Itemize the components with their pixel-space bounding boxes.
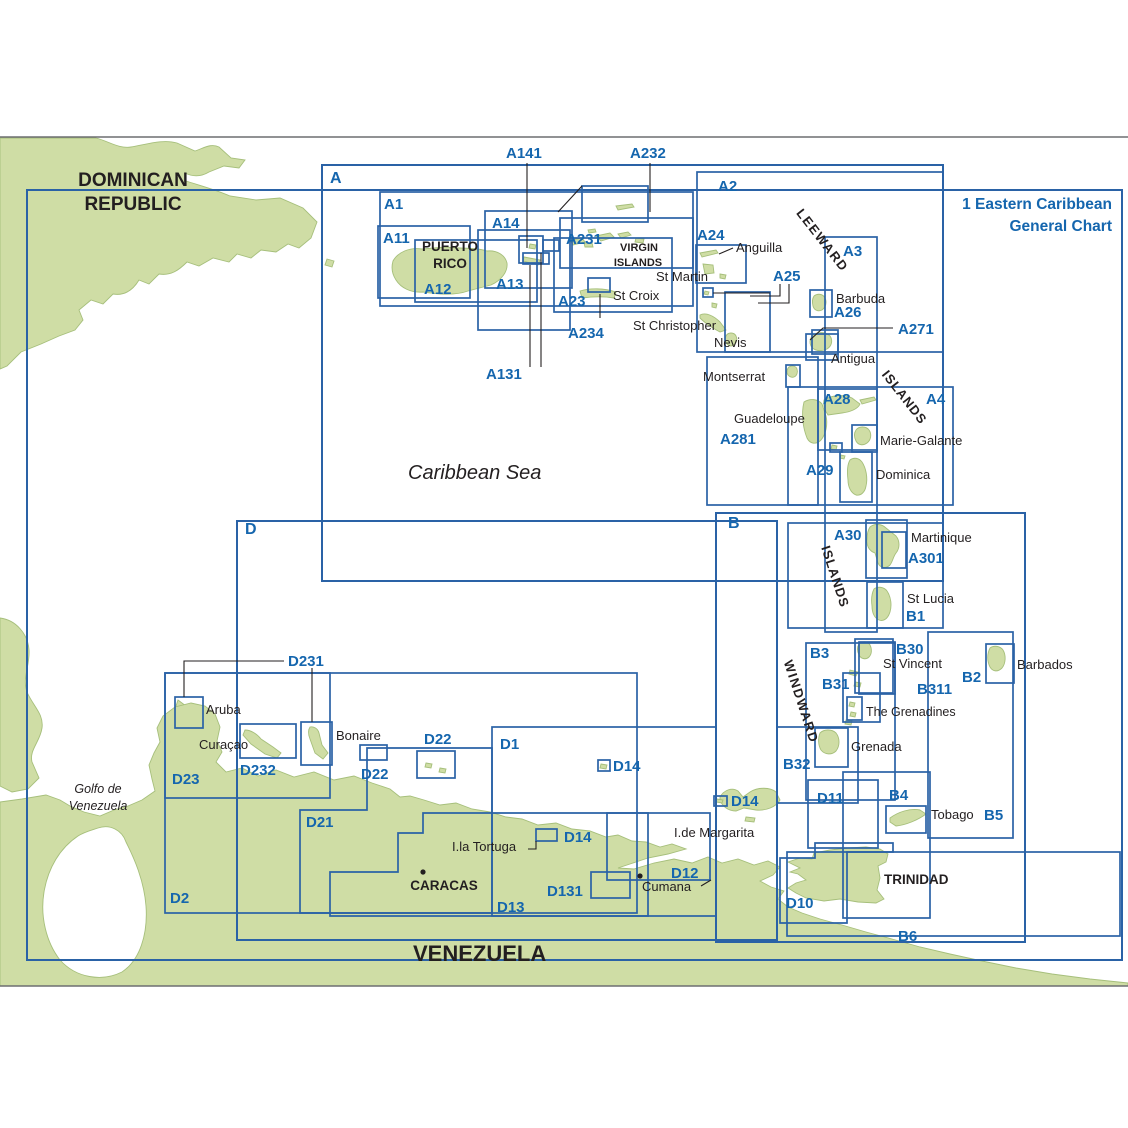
label-a25: A25 [773,268,801,285]
label-martinique: Martinique [911,530,972,545]
box-vieques-1 [543,240,559,251]
grenada-island [819,730,839,754]
montserrat-island [787,366,797,377]
label-grenadines: The Grenadines [866,705,956,719]
label-antigua: Antigua [831,351,876,366]
label-republic: REPUBLIC [84,194,181,215]
label-a30: A30 [834,527,862,544]
label-a29: A29 [806,462,834,479]
box-a [322,165,943,581]
label-a11: A11 [383,230,410,247]
label-windward: WINDWARD [781,658,822,745]
label-d14-b: D14 [613,758,641,775]
label-rico: RICO [433,256,467,271]
conn-a25-1 [750,284,780,296]
label-a301: A301 [908,550,944,567]
label-leeward: LEEWARD [793,206,851,275]
label-curacao: Curaçao [199,737,248,752]
anguilla-island [700,250,718,257]
bonaire-island [309,727,329,759]
coche-islet [745,817,755,822]
label-dominica: Dominica [876,467,931,482]
label-a14: A14 [492,215,520,232]
label-dominican: DOMINICAN [78,170,188,191]
label-d14-c: D14 [731,793,759,810]
label-a12: A12 [424,281,452,298]
tobago-island [890,809,926,826]
mona-island [325,259,334,267]
label-b311: B311 [917,681,952,698]
label-b32: B32 [783,756,811,773]
label-d2: D2 [170,890,189,907]
st-lucia-island [872,587,891,620]
label-puerto: PUERTO [422,239,478,254]
antigua-island [810,333,832,351]
label-venezuela: VENEZUELA [413,941,546,966]
label-nevis: Nevis [714,335,747,350]
barbuda-island [812,294,826,311]
label-a234: A234 [568,325,605,342]
label-barbados: Barbados [1017,657,1073,672]
label-b4: B4 [889,787,909,804]
label-islands-vi: ISLANDS [614,257,662,269]
curacao-island [243,730,281,758]
label-a1: A1 [384,196,403,213]
label-a4: A4 [926,391,946,408]
label-stmartin: St Martin [656,269,708,284]
label-margarita: I.de Margarita [674,825,755,840]
landmasses [0,138,1128,986]
label-anguilla: Anguilla [736,240,783,255]
label-a141: A141 [506,145,542,162]
conn-d231-left [184,661,284,697]
label-a26: A26 [834,304,862,321]
virgin-gorda-island [618,232,631,238]
caracas-dot [420,869,425,874]
label-a23: A23 [558,293,586,310]
label-b1: B1 [906,608,925,625]
label-b6: B6 [898,928,917,945]
label-tobago: Tobago [931,807,974,822]
label-a2: A2 [718,178,737,195]
label-montserrat: Montserrat [703,369,766,384]
label-d22-a: D22 [361,766,389,783]
label-b: B [728,515,740,532]
los-roques-islet-1 [425,763,432,768]
st-barth-island [720,274,726,279]
label-title-2: General Chart [1009,218,1112,235]
label-stvincent: St Vincent [883,656,942,671]
label-d10: D10 [786,895,814,912]
saba-island [704,291,709,295]
culebra-island [529,244,536,249]
orchila-islet [600,764,607,769]
label-d131: D131 [547,883,583,900]
label-islands-windward: ISLANDS [818,544,852,610]
label-a271: A271 [898,321,934,338]
label-d232: D232 [240,762,276,779]
label-d22-b: D22 [424,731,452,748]
label-d: D [245,521,257,538]
label-virgin: VIRGIN [620,242,658,254]
cumana-dot [637,873,642,878]
grenadine-islet-3 [850,712,856,717]
blanquilla-islet [716,799,723,803]
chart-index-page: 1 Eastern CaribbeanGeneral ChartAA1A11A1… [0,0,1128,1128]
label-trinidad: TRINIDAD [884,872,949,887]
label-d13: D13 [497,899,525,916]
marie-galante-island [855,427,871,445]
label-a: A [330,170,342,187]
label-caracas: CARACAS [410,878,478,893]
los-roques-islet-2 [439,768,446,773]
label-d23: D23 [172,771,200,788]
label-stchristopher: St Christopher [633,318,717,333]
label-d11: D11 [817,790,844,807]
eastern-caribbean-index-map: 1 Eastern CaribbeanGeneral ChartAA1A11A1… [0,0,1128,1128]
label-tortuga: I.la Tortuga [452,839,517,854]
label-mariegalante: Marie-Galante [880,433,962,448]
grenadine-islet-2 [849,702,855,707]
label-d231: D231 [288,653,324,670]
label-a13: A13 [496,276,524,293]
box-d22-2 [417,751,455,778]
label-barbuda: Barbuda [836,291,886,306]
label-aruba: Aruba [206,702,241,717]
anegada-island [616,204,634,210]
label-b31: B31 [822,676,850,693]
label-a281: A281 [720,431,756,448]
label-islands-leeward: ISLANDS [879,367,930,427]
label-d21: D21 [306,814,334,831]
label-golfo-2: Venezuela [69,799,128,813]
label-title-1: 1 Eastern Caribbean [962,196,1112,213]
label-bonaire: Bonaire [336,728,381,743]
label-caribbean-sea: Caribbean Sea [408,462,541,484]
label-d14-a: D14 [564,829,592,846]
dominica-island [847,458,866,495]
label-a232: A232 [630,145,666,162]
label-guadeloupe: Guadeloupe [734,411,805,426]
label-grenada: Grenada [851,739,902,754]
desirade-island [860,397,876,404]
conn-anguilla [719,248,733,254]
label-d1: D1 [500,736,519,753]
label-cumana: Cumana [642,879,692,894]
label-a131: A131 [486,366,522,383]
barbados-island [988,646,1005,671]
guajira-peninsula [0,618,42,792]
label-b5: B5 [984,807,1003,824]
label-stlucia: St Lucia [907,591,955,606]
label-a28: A28 [823,391,851,408]
martinique-island [867,524,899,567]
label-a24: A24 [697,227,725,244]
label-b2: B2 [962,669,981,686]
label-b3: B3 [810,645,829,662]
label-a231: A231 [566,231,602,248]
label-stcroix: St Croix [613,288,660,303]
statia-island [712,303,717,308]
label-golfo-1: Golfo de [74,782,121,796]
